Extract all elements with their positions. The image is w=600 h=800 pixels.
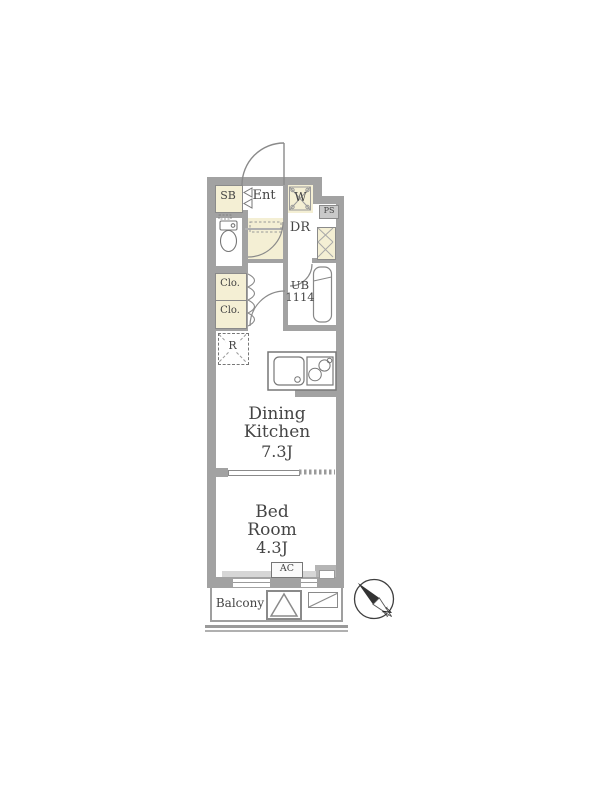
site-boundary-line-2 [205, 630, 348, 632]
pipe-space-box: PS [319, 205, 339, 219]
compass-icon: N [355, 579, 395, 619]
wall-below-toilet [207, 266, 248, 273]
wall-partition-stub [207, 468, 228, 477]
closet-doors-icon [248, 274, 255, 326]
window-left-line [233, 582, 270, 583]
refrigerator-label: R [218, 340, 247, 352]
pipe-space-label: PS [320, 207, 338, 216]
air-conditioner-label: AC [272, 564, 302, 574]
entrance-step-line [245, 228, 283, 230]
dining-kitchen-size-label: 7.3J [232, 443, 322, 460]
bedroom-size-label: 4.3J [237, 539, 307, 556]
washer-label: W [288, 191, 313, 204]
wall-left [207, 177, 216, 588]
hall-door-arc [250, 291, 285, 326]
window-right-line [301, 582, 317, 583]
closet1-label: Clo. [215, 279, 245, 290]
window-right [301, 579, 317, 587]
kitchen-counter-icon [268, 352, 336, 390]
toilet-icon [219, 215, 237, 252]
air-conditioner-box: AC [271, 562, 303, 578]
dining-kitchen-label: Dining Kitchen [232, 405, 322, 442]
site-boundary-line-1 [205, 625, 348, 628]
entrance-label: Ent [245, 189, 283, 203]
wall-sleeve-notch [319, 570, 335, 579]
wall-bath-bottom [283, 325, 336, 331]
window-left [233, 579, 270, 587]
dressing-room-label: DR [286, 221, 314, 235]
shoebox-label: SB [215, 190, 241, 202]
closet2-label: Clo. [215, 306, 245, 317]
balcony-label: Balcony [212, 597, 268, 610]
fixtures-layer: N [0, 0, 600, 800]
sliding-door-sill [228, 470, 300, 476]
floor-plan: PS AC [0, 0, 600, 800]
wall-kitchen-step [295, 388, 344, 397]
room-washroom [248, 218, 283, 259]
unit-bath-size-label: 1114 [283, 291, 317, 303]
water-heater-box [317, 227, 336, 260]
bedroom-label: Bed Room [237, 503, 307, 540]
north-label: N [381, 606, 395, 620]
evacuation-hatch-box [266, 590, 302, 620]
balcony-partition-panel [308, 592, 338, 608]
